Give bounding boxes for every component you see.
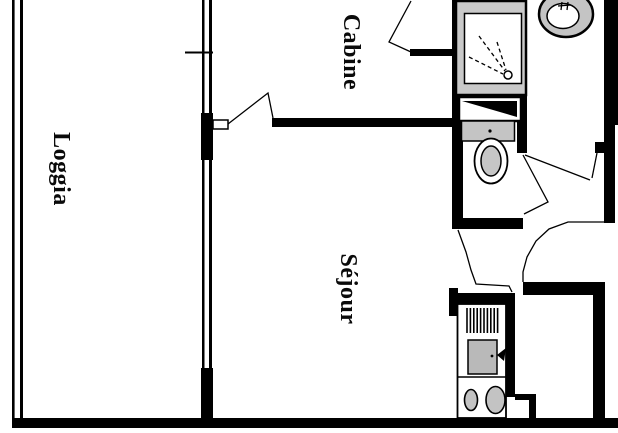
shower-icon: [456, 1, 526, 95]
wall-cabine-sejour: [272, 118, 463, 127]
sejour-door-swing: [458, 230, 512, 292]
wall-cabine-door-stub: [410, 49, 452, 56]
floor-plan-drawing: [0, 0, 618, 433]
door-stop-stub: [595, 142, 604, 153]
washbasin-icon: [539, 0, 593, 37]
loggia-rail-outer: [12, 0, 15, 424]
loggia-door-swing: [228, 93, 273, 124]
loggia-rail-inner: [20, 0, 23, 421]
wall-bottom: [12, 418, 618, 428]
kitchen-burner-large: [486, 387, 505, 414]
kitchenette-icon: [458, 304, 507, 418]
window-wall-solid-lower: [201, 368, 213, 419]
wc-door-swing: [523, 155, 548, 214]
kitchen-burner-small: [465, 390, 478, 411]
door-swings: [213, 1, 604, 292]
wall-kitchen-step-v: [529, 394, 536, 428]
wall-right-upper: [604, 0, 615, 223]
wall-right-lower: [593, 282, 605, 428]
window-wall-line-left: [202, 0, 205, 419]
floor-plan: Loggia Cabine Séjour: [0, 0, 618, 433]
wall-kitchen-right: [506, 293, 515, 397]
window-wall-line-right: [209, 0, 212, 419]
window-wall-solid-upper: [201, 113, 213, 160]
loggia-door-stub: [213, 120, 228, 129]
bathroom-door-chord: [592, 153, 597, 178]
vanity-icon: [459, 97, 521, 121]
wall-bathroom-bottom: [452, 218, 523, 229]
cabine-door-swing: [389, 1, 411, 52]
wall-entry-horizontal: [523, 282, 605, 295]
window-wall-tick: [185, 52, 213, 54]
toilet-icon: [462, 121, 515, 184]
entry-door-arc: [523, 222, 604, 282]
